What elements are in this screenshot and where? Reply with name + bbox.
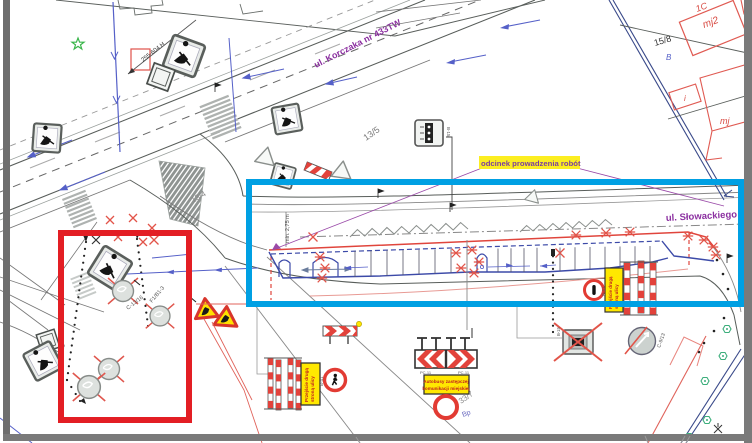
svg-text:B-41: B-41 [601, 286, 606, 296]
svg-text:Autobusy zastępczej: Autobusy zastępczej [423, 379, 468, 384]
svg-text:B: B [666, 53, 672, 62]
svg-text:i: i [684, 94, 686, 103]
svg-text:B-41: B-41 [319, 376, 324, 386]
svg-text:B-15: B-15 [556, 326, 561, 336]
svg-text:PC-11: PC-11 [458, 370, 470, 375]
svg-text:stroną ulicy: stroną ulicy [310, 376, 315, 402]
svg-text:komunikacji miejskiej: komunikacji miejskiej [422, 386, 469, 391]
svg-text:odcinek prowadzenia robót: odcinek prowadzenia robót [481, 159, 581, 168]
svg-text:PC-11: PC-11 [420, 370, 432, 375]
svg-text:mj: mj [720, 116, 730, 126]
svg-text:B-15: B-15 [446, 127, 451, 137]
svg-text:Przejście drugą: Przejście drugą [304, 368, 309, 402]
